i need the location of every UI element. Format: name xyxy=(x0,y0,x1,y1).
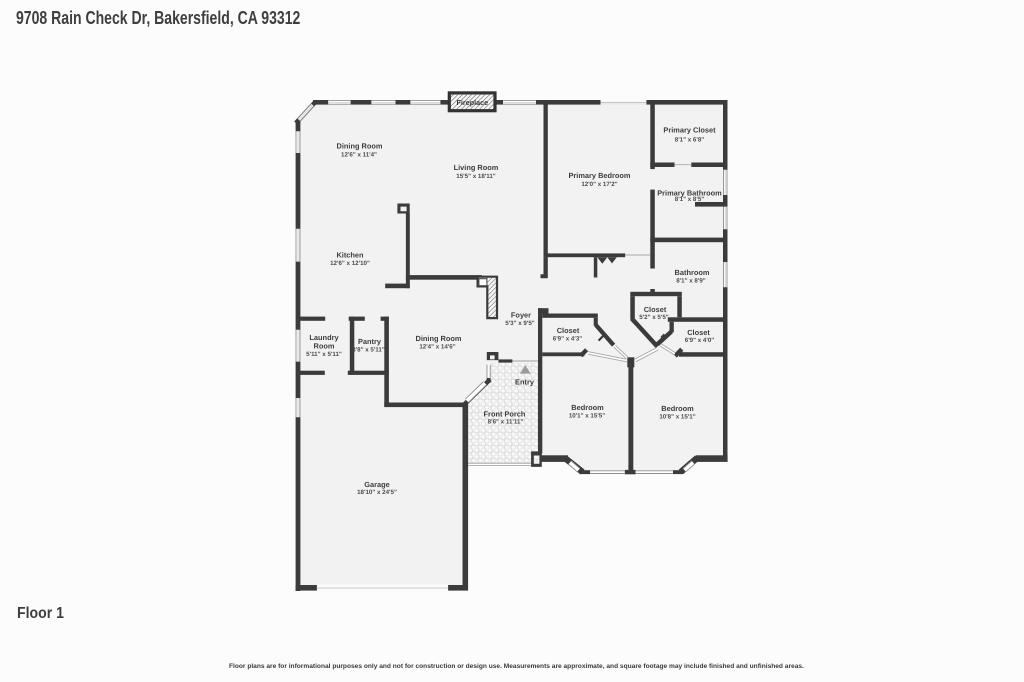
svg-text:5'2" x 5'5": 5'2" x 5'5" xyxy=(639,314,669,321)
svg-text:6'9" x 4'3": 6'9" x 4'3" xyxy=(553,336,583,343)
svg-text:12'0" x 17'2": 12'0" x 17'2" xyxy=(581,181,617,188)
svg-text:Front Porch: Front Porch xyxy=(484,410,526,419)
svg-text:5'3" x 9'5": 5'3" x 9'5" xyxy=(505,320,535,327)
svg-text:8'6" x 11'11": 8'6" x 11'11" xyxy=(488,419,524,426)
svg-text:Bedroom: Bedroom xyxy=(571,403,604,412)
svg-text:15'5" x 18'11": 15'5" x 18'11" xyxy=(456,173,496,180)
svg-text:Fireplace: Fireplace xyxy=(457,98,489,107)
svg-text:5'11" x 5'11": 5'11" x 5'11" xyxy=(306,351,342,358)
svg-text:Closet: Closet xyxy=(557,326,580,335)
svg-text:12'4" x 14'6": 12'4" x 14'6" xyxy=(419,344,455,351)
svg-text:Primary Closet: Primary Closet xyxy=(663,126,716,135)
svg-text:18'10" x 24'5": 18'10" x 24'5" xyxy=(357,489,397,496)
svg-text:8'1" x 6'8": 8'1" x 6'8" xyxy=(675,137,705,144)
svg-text:Bedroom: Bedroom xyxy=(661,404,694,413)
svg-text:Closet: Closet xyxy=(644,305,667,314)
svg-text:Closet: Closet xyxy=(687,328,710,337)
svg-text:8'1" x 8'5": 8'1" x 8'5" xyxy=(675,196,705,203)
svg-text:Pantry: Pantry xyxy=(358,337,382,346)
svg-text:6'9" x 4'0": 6'9" x 4'0" xyxy=(685,337,715,344)
svg-text:3'8" x 5'11": 3'8" x 5'11" xyxy=(352,347,385,354)
svg-text:Kitchen: Kitchen xyxy=(336,251,364,260)
svg-text:Room: Room xyxy=(314,342,335,351)
svg-text:10'8" x 15'1": 10'8" x 15'1" xyxy=(659,414,695,421)
svg-text:Garage: Garage xyxy=(364,480,389,489)
svg-text:Foyer: Foyer xyxy=(511,311,531,320)
svg-text:10'1" x 15'5": 10'1" x 15'5" xyxy=(569,413,605,420)
svg-text:12'6" x 11'4": 12'6" x 11'4" xyxy=(341,152,377,159)
svg-text:Entry: Entry xyxy=(515,378,535,387)
svg-text:Dining Room: Dining Room xyxy=(416,334,462,343)
svg-text:Bathroom: Bathroom xyxy=(675,268,710,277)
svg-text:Primary Bedroom: Primary Bedroom xyxy=(568,171,630,180)
svg-text:Dining Room: Dining Room xyxy=(337,142,383,151)
svg-text:12'6" x 12'10": 12'6" x 12'10" xyxy=(330,260,370,267)
svg-text:Living Room: Living Room xyxy=(454,163,499,172)
svg-text:8'1" x 8'9": 8'1" x 8'9" xyxy=(676,278,706,285)
